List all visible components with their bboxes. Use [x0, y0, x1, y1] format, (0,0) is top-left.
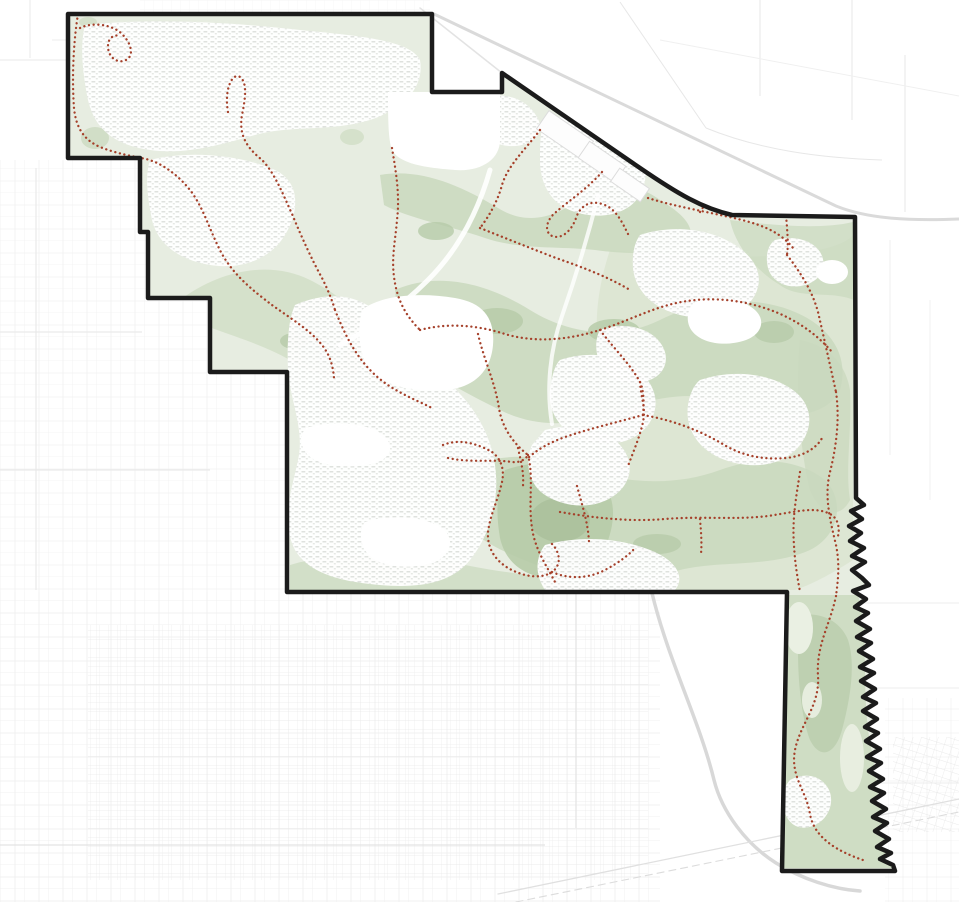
outside-road-line — [660, 40, 959, 96]
greenbelt-area — [340, 129, 364, 145]
open-space-light-patch — [802, 682, 822, 718]
open-space-light-patch — [840, 724, 864, 792]
outside-street-grid — [140, 0, 430, 13]
trails-open-space-map — [0, 0, 959, 902]
greenbelt-dense-area — [418, 222, 454, 240]
vacant-area — [816, 260, 848, 284]
vacant-area — [388, 92, 500, 170]
vacant-area — [359, 295, 493, 390]
open-space-light-patch — [785, 602, 813, 654]
map-screenshot — [0, 0, 959, 902]
outside-street-grid — [893, 737, 959, 832]
outside-street-grid — [88, 625, 648, 880]
